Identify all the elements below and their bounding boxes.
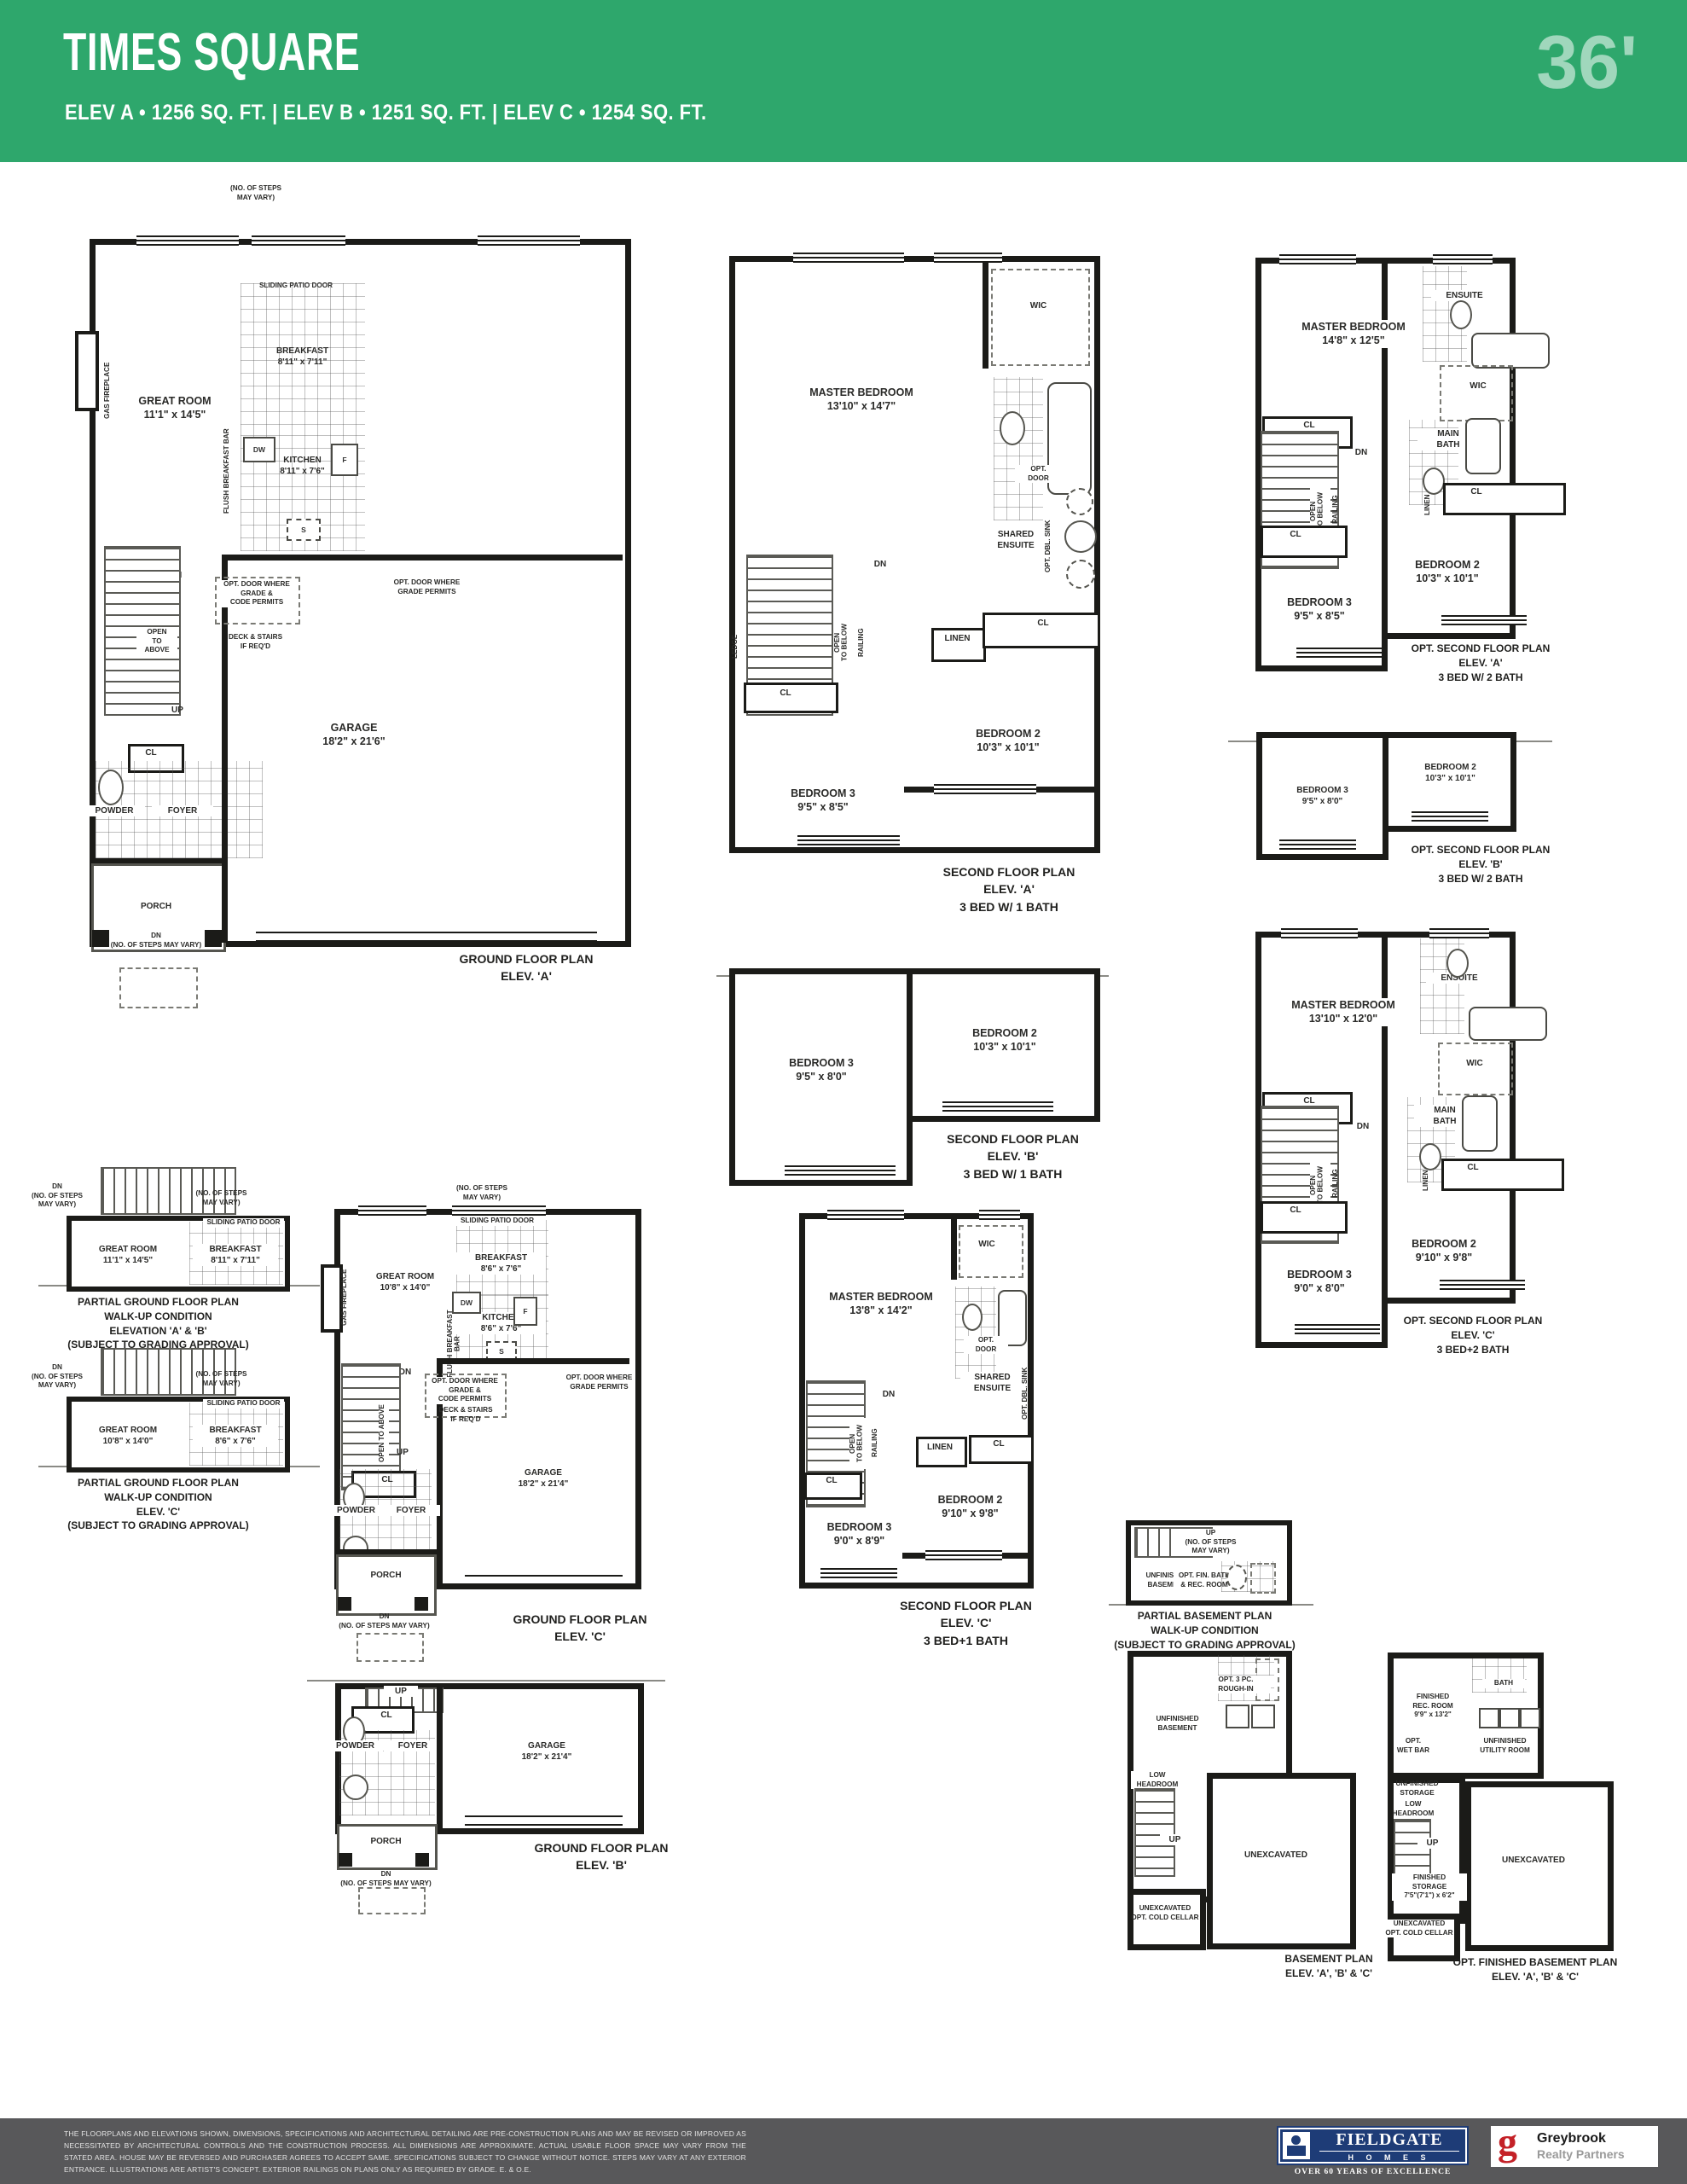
closet-label: CL — [1279, 1205, 1312, 1216]
greybrook-g-icon: g — [1498, 2119, 1517, 2164]
dishwasher: DW — [452, 1292, 481, 1314]
room-label-unfinished-basement: UNFINISHED BASEMENT — [1141, 1715, 1214, 1733]
window-marker — [1433, 254, 1493, 264]
datum-line — [307, 1680, 665, 1682]
plan-caption: OPT. FINISHED BASEMENT PLAN ELEV. 'A', '… — [1424, 1955, 1646, 1984]
plan-caption: GROUND FLOOR PLAN ELEV. 'C' — [512, 1611, 648, 1646]
room-label-bed2: BEDROOM 2 9'10" x 9'8" — [904, 1493, 1036, 1521]
room-label-foyer: FOYER — [384, 1740, 442, 1751]
window-marker — [1412, 811, 1488, 822]
garage-door — [465, 1815, 623, 1826]
sliding-patio-door-label: SLIDING PATIO DOOR — [450, 1217, 544, 1226]
plan-caption: GROUND FLOOR PLAN ELEV. 'A' — [420, 950, 633, 985]
room-label-bed3: BEDROOM 3 9'0" x 8'9" — [793, 1520, 925, 1548]
porch-post — [92, 930, 109, 947]
closet-label: CL — [370, 1710, 403, 1721]
wall — [222, 555, 623, 561]
floorplan-sheet: TIMES SQUARE ELEV A • 1256 SQ. FT. | ELE… — [0, 0, 1687, 2184]
sliding-patio-door-label: SLIDING PATIO DOOR — [203, 1399, 284, 1409]
low-headroom-label: LOW HEADROOM — [1387, 1800, 1440, 1818]
room-label-powder: POWDER — [328, 1740, 383, 1751]
toilet-fixture — [962, 1304, 983, 1331]
plan-caption: BASEMENT PLAN ELEV. 'A', 'B' & 'C' — [1256, 1952, 1401, 1981]
fieldgate-builder-icon — [1283, 2132, 1310, 2159]
header-banner: TIMES SQUARE ELEV A • 1256 SQ. FT. | ELE… — [0, 0, 1687, 162]
stairs-dn-label: DN — [872, 1389, 906, 1400]
stairs-up-label: UP — [386, 1447, 420, 1458]
window-marker — [979, 1210, 1020, 1220]
closet-label: CL — [983, 1438, 1015, 1449]
porch-post — [338, 1597, 351, 1611]
stairs-dn-label: DN — [863, 559, 897, 570]
room-label-bed3: BEDROOM 3 9'5" x 8'5" — [1255, 595, 1383, 624]
room-label-porch: PORCH — [358, 1570, 414, 1581]
flush-breakfast-bar-label: FLUSH BREAKFAST BAR — [223, 420, 235, 522]
closet-label: CL — [135, 747, 167, 758]
room-label-foyer: FOYER — [382, 1505, 440, 1516]
opt-door-note: OPT. DOOR WHERE GRADE & CODE PERMITS — [426, 1377, 503, 1404]
rough-in-note: OPT. 3 PC. ROUGH-IN — [1201, 1676, 1271, 1693]
porch-post — [415, 1597, 428, 1611]
wet-bar-label: OPT. WET BAR — [1387, 1737, 1440, 1755]
steps-note: (NO. OF STEPS MAY VARY) — [189, 1189, 253, 1207]
porch-post — [415, 1853, 429, 1867]
closet-label: CL — [1293, 420, 1325, 431]
plan-caption: SECOND FLOOR PLAN ELEV. 'A' 3 BED W/ 1 B… — [911, 863, 1107, 915]
lot-width-tag: 36' — [1536, 19, 1638, 106]
room-label-garage: GARAGE 18'2" x 21'4" — [491, 1740, 602, 1763]
low-headroom-label: LOW HEADROOM — [1131, 1771, 1184, 1789]
plan-caption: OPT. SECOND FLOOR PLAN ELEV. 'C' 3 BED+2… — [1375, 1314, 1571, 1356]
room-label-breakfast: BREAKFAST 8'11" x 7'11" — [249, 346, 356, 368]
steps-note: DN (NO. OF STEPS MAY VARY) — [24, 1363, 90, 1391]
room-label-garage: GARAGE 18'2" x 21'6" — [294, 721, 414, 749]
room-label-great-room: GREAT ROOM 10'8" x 14'0" — [85, 1425, 171, 1447]
room-label-bed3: BEDROOM 3 9'5" x 8'0" — [757, 1056, 885, 1084]
room-label-master: MASTER BEDROOM 13'10" x 12'0" — [1279, 998, 1407, 1026]
linen-label: LINEN — [918, 1442, 962, 1453]
garage-door — [465, 1575, 623, 1585]
window-marker — [1440, 1280, 1525, 1290]
toilet-fixture — [1446, 949, 1469, 978]
window-marker — [1279, 839, 1356, 850]
wic-outline — [959, 1225, 1023, 1278]
furnace — [1226, 1705, 1249, 1728]
sink-fixture — [1066, 488, 1093, 515]
room-label-breakfast: BREAKFAST 8'6" x 7'6" — [193, 1425, 278, 1447]
cold-cellar-label: UNEXCAVATED OPT. COLD CELLAR — [1385, 1920, 1453, 1937]
garage-door — [256, 932, 597, 942]
wall — [983, 262, 988, 369]
patio-door-marker — [478, 235, 580, 246]
opt-door-label: OPT. DOOR — [964, 1336, 1008, 1354]
bathtub — [1250, 1563, 1276, 1594]
plan-caption: SECOND FLOOR PLAN ELEV. 'B' 3 BED W/ 1 B… — [921, 1130, 1104, 1182]
bathtub — [1471, 333, 1550, 369]
plan-caption: PARTIAL GROUND FLOOR PLAN WALK-UP CONDIT… — [49, 1476, 267, 1533]
room-label-unf-storage: UNFINISHED STORAGE — [1385, 1780, 1449, 1798]
room-label-shared-ensuite: SHARED ENSUITE — [960, 1372, 1024, 1394]
sink: S — [287, 519, 321, 541]
toilet-fixture — [343, 1774, 368, 1800]
room-label-master: MASTER BEDROOM 14'8" x 12'5" — [1290, 320, 1417, 348]
linen-label: LINEN — [1424, 485, 1435, 526]
window-marker — [1295, 1324, 1380, 1334]
opt-door-note: OPT. DOOR WHERE GRADE & CODE PERMITS — [218, 580, 295, 607]
closet-label: CL — [1457, 1162, 1489, 1173]
toilet-fixture — [1226, 1565, 1247, 1590]
room-label-rec-room: FINISHED REC. ROOM 9'9" x 13'2" — [1395, 1693, 1470, 1720]
wic-outline — [1440, 365, 1513, 421]
tile-area — [955, 1287, 996, 1379]
opt-door-note: OPT. DOOR WHERE GRADE PERMITS — [382, 578, 472, 596]
porch-steps-note: DN (NO. OF STEPS MAY VARY) — [333, 1870, 439, 1888]
tile-area — [994, 377, 1043, 520]
linen-label: LINEN — [1423, 1160, 1433, 1201]
flush-breakfast-bar-label: FLUSH BREAKFAST BAR — [447, 1304, 457, 1385]
room-label-bed2: BEDROOM 2 9'10" x 9'8" — [1380, 1237, 1508, 1265]
room-label-fin-storage: FINISHED STORAGE 7'5"(7'1") x 6'2" — [1392, 1873, 1467, 1901]
window-marker — [1279, 254, 1356, 264]
room-label-utility: UNFINISHED UTILITY ROOM — [1469, 1737, 1541, 1755]
window-marker — [1441, 615, 1527, 625]
window-marker — [136, 235, 239, 246]
window-marker — [797, 835, 900, 845]
patio-door-marker — [452, 1205, 546, 1216]
page-title: TIMES SQUARE — [63, 22, 360, 83]
plan-caption: GROUND FLOOR PLAN ELEV. 'B' — [529, 1839, 674, 1874]
elevation-summary: ELEV A • 1256 SQ. FT. | ELEV B • 1251 SQ… — [65, 101, 706, 125]
bathtub — [1469, 1007, 1547, 1041]
dishwasher: DW — [243, 437, 275, 462]
room-label-breakfast: BREAKFAST 8'6" x 7'6" — [456, 1252, 546, 1275]
fieldgate-name: FIELDGATE — [1316, 2130, 1463, 2150]
room-label-porch: PORCH — [118, 901, 194, 912]
window-marker — [358, 1205, 426, 1216]
dryer — [1520, 1708, 1540, 1728]
plan-caption: PARTIAL GROUND FLOOR PLAN WALK-UP CONDIT… — [49, 1295, 267, 1352]
room-label-wic: WIC — [962, 1239, 1012, 1250]
porch-post — [205, 930, 222, 947]
plan-caption: OPT. SECOND FLOOR PLAN ELEV. 'A' 3 BED W… — [1395, 642, 1566, 684]
stairs-up-label: UP — [384, 1686, 418, 1697]
unexcavated-label: UNEXCAVATED — [1230, 1850, 1322, 1861]
room-label-wic: WIC — [1011, 300, 1066, 311]
room-label-foyer: FOYER — [152, 805, 213, 816]
room-label-powder: POWDER — [328, 1505, 384, 1516]
window-marker — [785, 1165, 896, 1176]
bathtub — [1462, 1095, 1498, 1152]
steps-note: DN (NO. OF STEPS MAY VARY) — [24, 1182, 90, 1210]
room-label-powder: POWDER — [84, 805, 145, 816]
closet-label: CL — [815, 1475, 848, 1486]
opt-dbl-sink-label: OPT. DBL. SINK — [1045, 510, 1057, 583]
room-label-bed2: BEDROOM 2 10'3" x 10'1" — [1383, 558, 1511, 586]
steps-note: (NO. OF STEPS MAY VARY) — [189, 1370, 253, 1388]
linen-label: LINEN — [934, 633, 981, 644]
furnace — [1479, 1708, 1499, 1728]
open-to-below-label: OPEN TO BELOW — [834, 616, 856, 669]
window-marker — [1281, 928, 1358, 938]
steps-note: (NO. OF STEPS MAY VARY) — [443, 1184, 520, 1202]
plan-caption: PARTIAL BASEMENT PLAN WALK-UP CONDITION … — [1104, 1609, 1305, 1652]
optional-steps — [357, 1633, 424, 1662]
room-label-great-room: GREAT ROOM 11'1" x 14'5" — [111, 394, 239, 422]
greybrook-subname: Realty Partners — [1537, 2147, 1625, 2161]
wall — [437, 1683, 443, 1828]
porch-steps-note: DN (NO. OF STEPS MAY VARY) — [101, 932, 212, 950]
steps-note: (NO. OF STEPS MAY VARY) — [192, 184, 320, 202]
stairs-dn-label: DN — [1346, 1121, 1380, 1132]
greybrook-logo: g Greybrook Realty Partners — [1491, 2126, 1658, 2167]
wall — [437, 1358, 629, 1364]
room-label-great-room: GREAT ROOM 10'8" x 14'0" — [358, 1271, 452, 1293]
closet-label: CL — [769, 688, 802, 699]
railing-label: RAILING — [1332, 1160, 1342, 1207]
opt-basement-unexcavated-box — [1465, 1781, 1614, 1951]
optional-steps — [119, 967, 198, 1008]
closet-label: CL — [1026, 618, 1060, 629]
opt-door-label: OPT. DOOR — [1015, 465, 1062, 483]
deck-stairs-note: DECK & STAIRS IF REQ'D — [426, 1406, 505, 1424]
icon-shape — [1291, 2135, 1301, 2145]
staircase — [1134, 1788, 1175, 1877]
open-to-below-label: OPEN TO BELOW — [849, 1418, 870, 1469]
railing-label: RAILING — [858, 619, 868, 666]
room-label-great-room: GREAT ROOM 11'1" x 14'5" — [85, 1244, 171, 1266]
room-label-wic: WIC — [1448, 1058, 1501, 1069]
stairs-up-label: UP — [1160, 1834, 1190, 1845]
wic-outline — [991, 269, 1090, 366]
window-marker — [827, 1210, 904, 1220]
fridge: F — [331, 444, 358, 476]
sliding-patio-door-label: SLIDING PATIO DOOR — [203, 1218, 284, 1228]
toilet-fixture — [1450, 300, 1472, 329]
railing-label: RAILING — [872, 1420, 882, 1467]
room-label-bed2: BEDROOM 2 10'3" x 10'1" — [940, 727, 1076, 755]
sink-fixture — [98, 770, 124, 805]
fieldgate-homes: H O M E S — [1319, 2151, 1459, 2162]
fireplace — [75, 331, 99, 411]
room-label-bed2: BEDROOM 2 10'3" x 10'1" — [936, 1026, 1073, 1054]
window-marker — [820, 1568, 897, 1578]
disclaimer-text: THE FLOORPLANS AND ELEVATIONS SHOWN, DIM… — [64, 2128, 746, 2175]
porch-steps-note: DN (NO. OF STEPS MAY VARY) — [331, 1612, 438, 1630]
window-marker — [1429, 928, 1489, 938]
room-label-master: MASTER BEDROOM 13'8" x 14'2" — [817, 1290, 945, 1318]
gas-fireplace-label: GAS FIREPLACE — [104, 340, 116, 442]
porch-post — [339, 1853, 352, 1867]
greybrook-name: Greybrook — [1537, 2131, 1606, 2146]
closet-label: CL — [1460, 486, 1493, 497]
plan-caption: SECOND FLOOR PLAN ELEV. 'C' 3 BED+1 BATH — [870, 1597, 1062, 1649]
washer — [1499, 1708, 1520, 1728]
cold-cellar-label: UNEXCAVATED OPT. COLD CELLAR — [1131, 1904, 1199, 1922]
unexcavated-label: UNEXCAVATED — [1487, 1855, 1580, 1866]
toilet-fixture — [1000, 411, 1025, 445]
bathtub — [1465, 418, 1501, 474]
stairs-up-label: UP — [1417, 1838, 1447, 1849]
room-label-ensuite: ENSUITE — [1431, 290, 1498, 301]
water-heater — [1251, 1705, 1275, 1728]
fridge: F — [513, 1297, 537, 1326]
optional-steps — [358, 1887, 426, 1914]
sink-fixture — [1066, 560, 1095, 589]
closet-label: CL — [1279, 529, 1312, 540]
room-label-wic: WIC — [1452, 380, 1504, 392]
window-marker — [252, 235, 345, 246]
room-label-master: MASTER BEDROOM 13'10" x 14'7" — [797, 386, 925, 414]
room-label-bath: BATH — [1482, 1679, 1525, 1688]
wall — [951, 1218, 957, 1280]
opt-door-note: OPT. DOOR WHERE GRADE PERMITS — [554, 1374, 644, 1391]
steps-note: UP (NO. OF STEPS MAY VARY) — [1179, 1529, 1243, 1556]
stairs-dn-label: DN — [1344, 447, 1378, 458]
opt-dbl-sink-label: OPT. DBL. SINK — [1022, 1362, 1032, 1426]
window-marker — [942, 1101, 1053, 1112]
room-label-garage: GARAGE 18'2" x 21'4" — [488, 1467, 599, 1490]
fieldgate-logo: FIELDGATE H O M E S — [1277, 2126, 1469, 2165]
room-label-breakfast: BREAKFAST 8'11" x 7'11" — [193, 1244, 278, 1266]
room-label-bed2: BEDROOM 2 10'3" x 10'1" — [1388, 762, 1512, 784]
sink-fixture — [1064, 520, 1097, 553]
stairs-up-label: UP — [160, 705, 194, 716]
ledge-label: LEDGE — [732, 627, 742, 665]
room-label-bed3: BEDROOM 3 9'5" x 8'0" — [1261, 785, 1384, 807]
window-marker — [934, 253, 1002, 263]
window-marker — [925, 1550, 1002, 1560]
icon-shape — [1287, 2146, 1306, 2156]
window-marker — [1296, 648, 1382, 658]
footer-bar: THE FLOORPLANS AND ELEVATIONS SHOWN, DIM… — [0, 2118, 1687, 2184]
room-label-bed3: BEDROOM 3 9'0" x 8'0" — [1255, 1268, 1383, 1296]
plan-caption: OPT. SECOND FLOOR PLAN ELEV. 'B' 3 BED W… — [1395, 843, 1566, 886]
room-label-shared-ensuite: SHARED ENSUITE — [983, 529, 1049, 551]
window-marker — [793, 253, 904, 263]
window-marker — [934, 784, 1036, 794]
fieldgate-tagline: OVER 60 YEARS OF EXCELLENCE — [1277, 2168, 1469, 2176]
deck-stairs-note: DECK & STAIRS IF REQ'D — [215, 633, 296, 651]
gas-fireplace-label: GAS FIREPLACE — [341, 1261, 351, 1333]
room-label-porch: PORCH — [358, 1836, 414, 1847]
room-label-bed3: BEDROOM 3 9'5" x 8'5" — [759, 787, 887, 815]
basement-unexcavated-box — [1207, 1773, 1356, 1949]
open-to-above-label: OPEN TO ABOVE — [136, 628, 177, 655]
wic-outline — [1438, 1043, 1513, 1095]
